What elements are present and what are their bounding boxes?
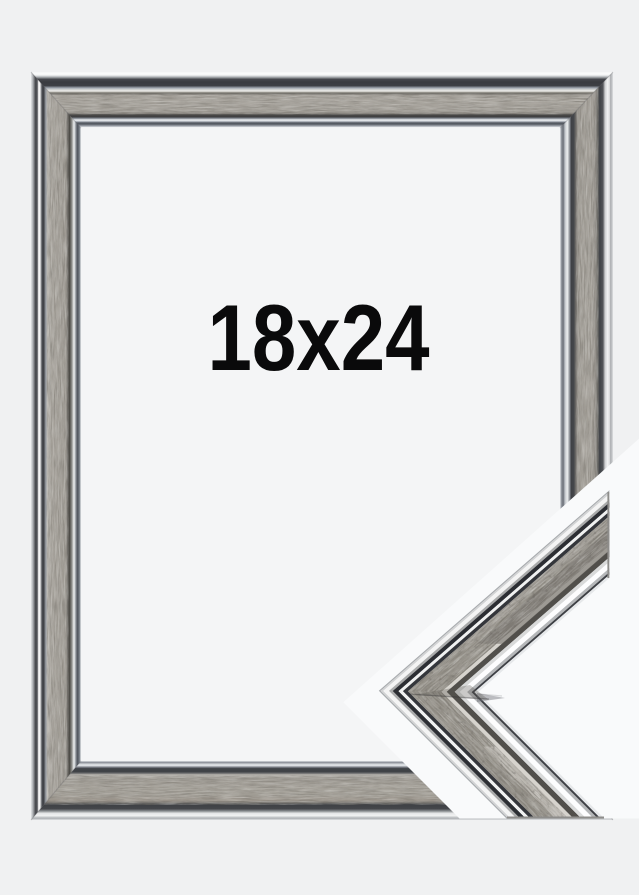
svg-text:18x24: 18x24 [208, 285, 430, 390]
